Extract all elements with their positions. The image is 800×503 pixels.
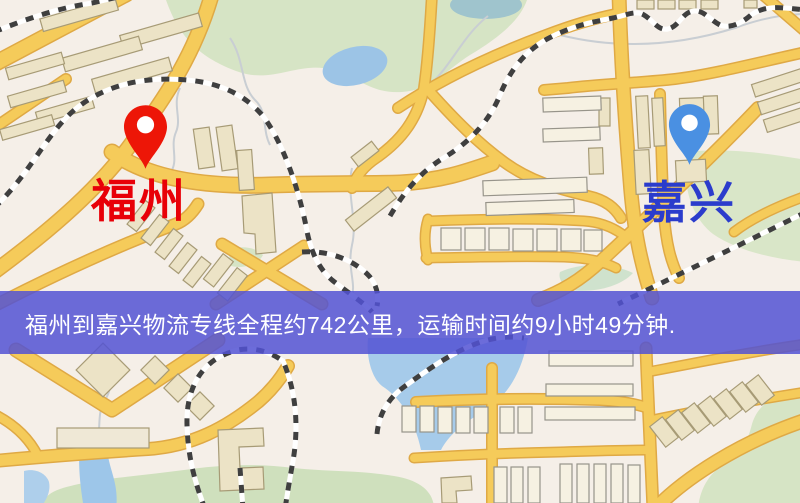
logistics-route-map: 福州 嘉兴 福州到嘉兴物流专线全程约742公里，运输时间约9小时49分钟. [0,0,800,503]
destination-pin-icon [668,103,711,167]
origin-marker [123,104,168,171]
street-map [0,0,800,503]
origin-city-label: 福州 [91,178,187,224]
pin-hole [137,116,154,133]
route-info-banner: 福州到嘉兴物流专线全程约742公里，运输时间约9小时49分钟. [0,291,800,354]
origin-pin-icon [123,104,168,171]
route-info-text: 福州到嘉兴物流专线全程约742公里，运输时间约9小时49分钟. [0,306,676,340]
destination-city-label: 嘉兴 [642,180,736,225]
pin-hole [681,115,697,131]
destination-marker [668,103,711,167]
